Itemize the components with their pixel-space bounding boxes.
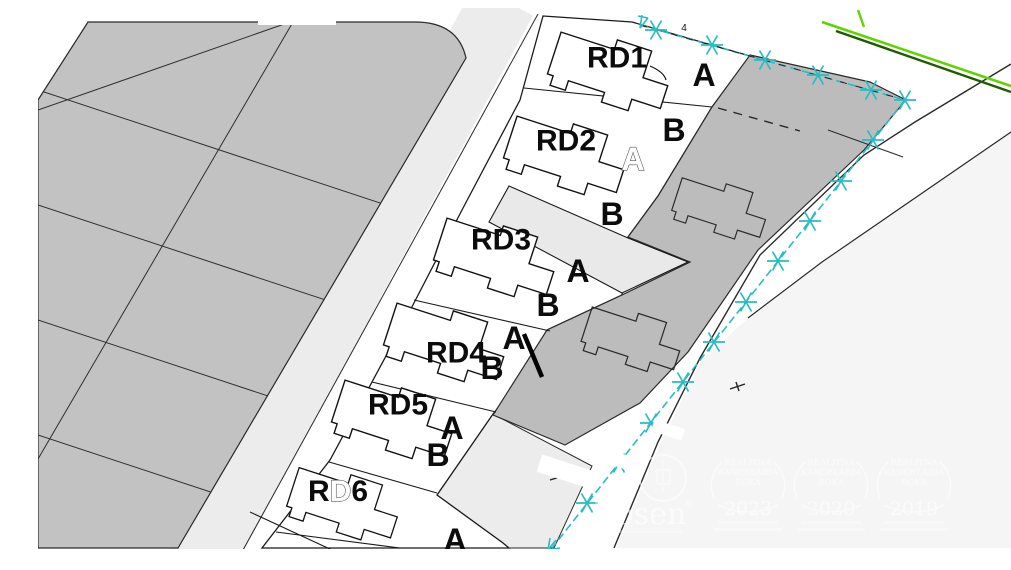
award-title-line: REALITNÁ bbox=[891, 456, 939, 468]
award-year: 2019 bbox=[890, 498, 938, 520]
award-title-line: ROKA bbox=[735, 478, 761, 488]
unit-rd2-b: B bbox=[662, 112, 685, 148]
site-plan-viewport: RD1 RD2 RD3 RD4 RD5 RD6 A B A B A B A B … bbox=[0, 0, 1011, 570]
unit-rd3-a: A bbox=[566, 253, 589, 289]
unit-rd5-b: B bbox=[426, 437, 449, 473]
unit-rd4-b: B bbox=[480, 350, 503, 386]
lot-label-rd1: RD1 bbox=[587, 42, 647, 75]
lot-label-rd2: RD2 bbox=[536, 125, 596, 158]
award-subtext-bar bbox=[714, 528, 782, 531]
brand-subtext-bar bbox=[600, 530, 682, 533]
award-title-line: REALITNÁ bbox=[725, 456, 773, 468]
award-title-line: REALITNÁ bbox=[808, 456, 856, 468]
green-tick bbox=[858, 10, 864, 27]
unit-rd3-b: B bbox=[536, 287, 559, 323]
registered-trademark: ® bbox=[684, 499, 693, 509]
unit-rd1-a: A bbox=[692, 57, 715, 93]
award-year: 2020 bbox=[807, 498, 855, 520]
award-title-line: KANCELÁRIA bbox=[801, 466, 862, 478]
unit-rd2-a-ghost: A bbox=[621, 141, 644, 177]
unit-rd4-a: A bbox=[502, 320, 525, 356]
award-subtext-bar bbox=[718, 521, 778, 524]
lot-label-rd5: RD5 bbox=[368, 389, 428, 422]
award-title-line: KANCELÁRIA bbox=[718, 466, 779, 478]
award-title-line: ROKA bbox=[818, 478, 844, 488]
lot-label-rd6: RD6 bbox=[308, 475, 368, 508]
award-subtext-bar bbox=[880, 528, 948, 531]
award-year: 2023 bbox=[724, 498, 772, 520]
award-subtext-bar bbox=[884, 521, 944, 524]
award-title-line: KANCELÁRIA bbox=[884, 466, 945, 478]
award-title-line: ROKA bbox=[901, 478, 927, 488]
award-subtext-bar bbox=[801, 521, 861, 524]
unit-rd2-b2: B bbox=[600, 196, 623, 232]
survey-point-number: 4 bbox=[681, 23, 687, 34]
lot-label-rd3: RD3 bbox=[471, 224, 531, 257]
brand-wordmark: Bosen bbox=[594, 497, 687, 532]
site-plan-map: RD1 RD2 RD3 RD4 RD5 RD6 A B A B A B A B … bbox=[0, 0, 1011, 570]
award-subtext-bar bbox=[797, 528, 865, 531]
lot-label-rd4: RD4 bbox=[426, 337, 486, 370]
